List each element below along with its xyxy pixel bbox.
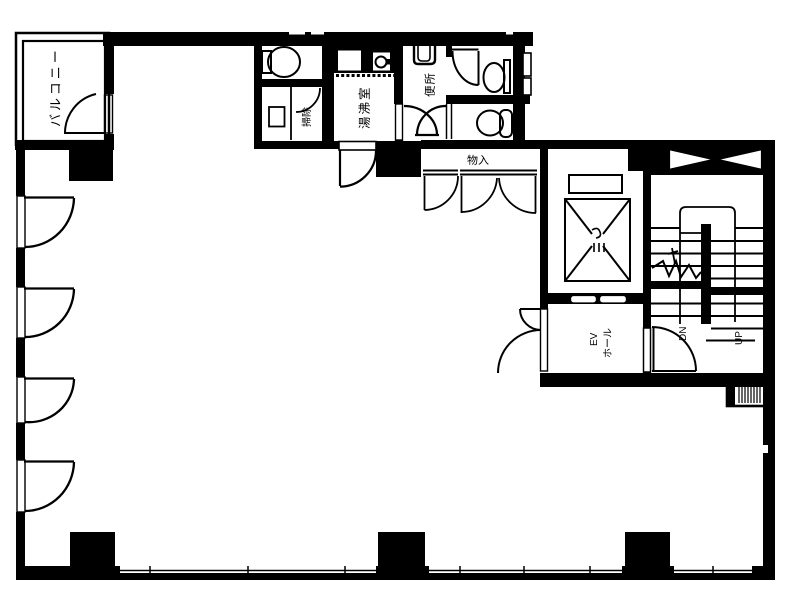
svg-text:ホール: ホール: [603, 328, 614, 358]
svg-text:DN: DN: [678, 327, 689, 341]
svg-text:バルコニー: バルコニー: [48, 47, 63, 127]
svg-text:EV: EV: [589, 332, 600, 346]
svg-text:湯沸室: 湯沸室: [358, 85, 372, 129]
svg-text:UP: UP: [734, 331, 745, 345]
svg-text:便所: 便所: [424, 72, 437, 97]
svg-text:物入: 物入: [467, 154, 489, 167]
svg-text:掃除: 掃除: [301, 107, 313, 127]
